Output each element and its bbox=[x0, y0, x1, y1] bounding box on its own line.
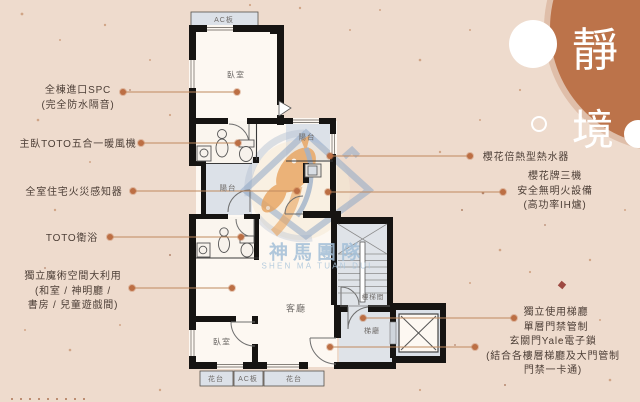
floorplan-flyer: 靜 境 神馬團隊 SHEN MA TUAN DUI AC板 臥室 陽台 陽台 客… bbox=[0, 0, 640, 402]
callout-line-text: 書房 / 兒童遊戲間) bbox=[12, 299, 134, 314]
callout-fire-detector: 全室住宅火災感知器 bbox=[14, 186, 134, 201]
title-char-jing: 靜 bbox=[572, 14, 618, 80]
white-dot-circle bbox=[509, 20, 557, 68]
callout-line-text: (和室 / 神明廳 / bbox=[12, 285, 134, 300]
callout-line-text: 獨立使用梯廳 bbox=[510, 306, 602, 321]
callout-magic-space: 獨立魔術空間大利用 (和室 / 神明廳 / 書房 / 兒童遊戲間) bbox=[12, 270, 134, 314]
callout-line-text: 櫻花倍熱型熱水器 bbox=[476, 151, 576, 166]
room-label-living: 客廳 bbox=[286, 302, 306, 315]
callout-line-text: (高功率IH爐) bbox=[495, 199, 615, 214]
white-ring-icon bbox=[532, 117, 546, 131]
callout-line-text: 櫻花牌三機 bbox=[495, 170, 615, 185]
callout-line-text: 安全無明火設備 bbox=[495, 185, 615, 200]
callout-spc-flooring: 全棟進口SPC (完全防水隔音) bbox=[16, 84, 140, 113]
callout-line-text: (結合各樓層梯廳及大門管制 bbox=[467, 350, 639, 365]
room-label-flower-right: 花台 bbox=[286, 374, 302, 384]
callout-toto-bathroom: TOTO衛浴 bbox=[33, 232, 111, 247]
callout-line-text: (完全防水隔音) bbox=[16, 99, 140, 114]
callout-master-bath-dryer: 主臥TOTO五合一暖風機 bbox=[8, 138, 148, 153]
callout-yale-smart-lock: 玄關門Yale電子鎖 (結合各樓層梯廳及大門管制 門禁一卡通) bbox=[467, 335, 639, 379]
watermark-latin: SHEN MA TUAN DUI bbox=[261, 262, 372, 271]
callout-line-text: 門禁一卡通) bbox=[467, 364, 639, 379]
room-label-balcony-mid: 陽台 bbox=[220, 183, 237, 194]
callout-line-text: 獨立魔術空間大利用 bbox=[12, 270, 134, 285]
room-label-balcony-right: 陽台 bbox=[299, 132, 316, 143]
title-char-jing2: 境 bbox=[572, 97, 614, 158]
room-label-bedroom-top: 臥室 bbox=[227, 70, 245, 81]
callout-line-text: 單層門禁管制 bbox=[510, 321, 602, 336]
callout-line-text: 主臥TOTO五合一暖風機 bbox=[8, 138, 148, 153]
callout-sakura-appliances: 櫻花牌三機 安全無明火設備 (高功率IH爐) bbox=[495, 170, 615, 214]
door-triangle-marker bbox=[279, 101, 291, 116]
callout-line-text: 玄關門Yale電子鎖 bbox=[467, 335, 639, 350]
callout-line-text: 全室住宅火災感知器 bbox=[14, 186, 134, 201]
kitchen-appliance bbox=[305, 164, 321, 177]
room-label-flower-left: 花台 bbox=[208, 374, 224, 384]
room-label-bedroom-bottom: 臥室 bbox=[213, 337, 231, 348]
watermark-name: 神馬團隊 bbox=[269, 238, 365, 265]
room-label-ac-top: AC板 bbox=[214, 15, 234, 25]
room-label-ac-bottom: AC板 bbox=[238, 374, 258, 384]
room-label-hall: 梯廳 bbox=[364, 326, 380, 336]
red-diamond-speckle bbox=[558, 281, 566, 289]
callout-line-text: TOTO衛浴 bbox=[33, 232, 111, 247]
room-label-stairwell: 樓梯間 bbox=[362, 291, 385, 301]
callout-line-text: 全棟進口SPC bbox=[16, 84, 140, 99]
callout-water-heater: 櫻花倍熱型熱水器 bbox=[476, 151, 576, 166]
callout-private-elevator-hall: 獨立使用梯廳 單層門禁管制 bbox=[510, 306, 602, 335]
elevator-door-panel bbox=[390, 322, 396, 344]
floor-plan bbox=[189, 12, 446, 386]
